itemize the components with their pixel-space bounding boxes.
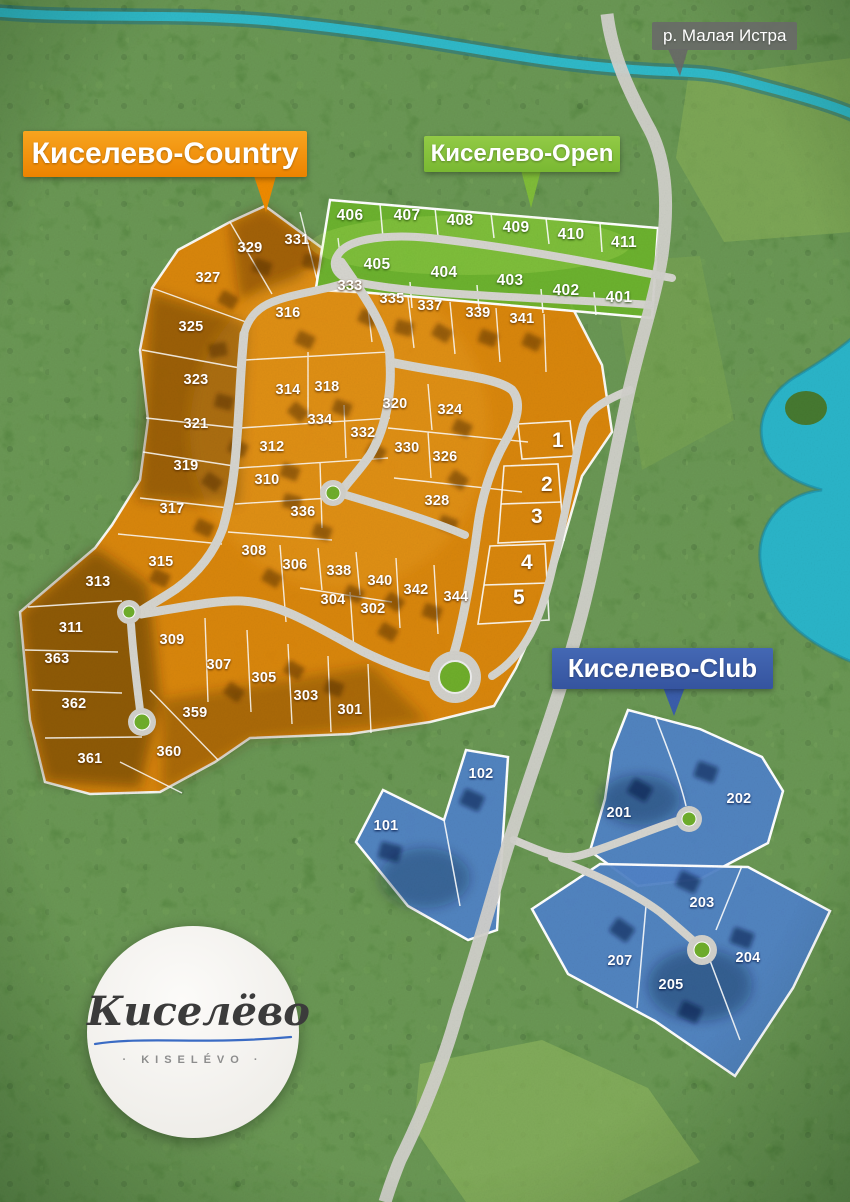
masterplan-map: 3293313273253233213193173153133113633623… (0, 0, 850, 1202)
logo-swoosh (93, 1034, 293, 1048)
logo-title: Киселёво (87, 992, 299, 1032)
callout-country: Киселево-Country (23, 131, 307, 177)
callout-river-label: р. Малая Истра (652, 22, 797, 50)
logo-subtitle: · KISELÉVO · (87, 1054, 299, 1066)
callout-open: Киселево-Open (424, 136, 620, 172)
kiselevo-logo: Киселёво · KISELÉVO · (87, 926, 299, 1138)
callout-club: Киселево-Club (552, 648, 773, 689)
